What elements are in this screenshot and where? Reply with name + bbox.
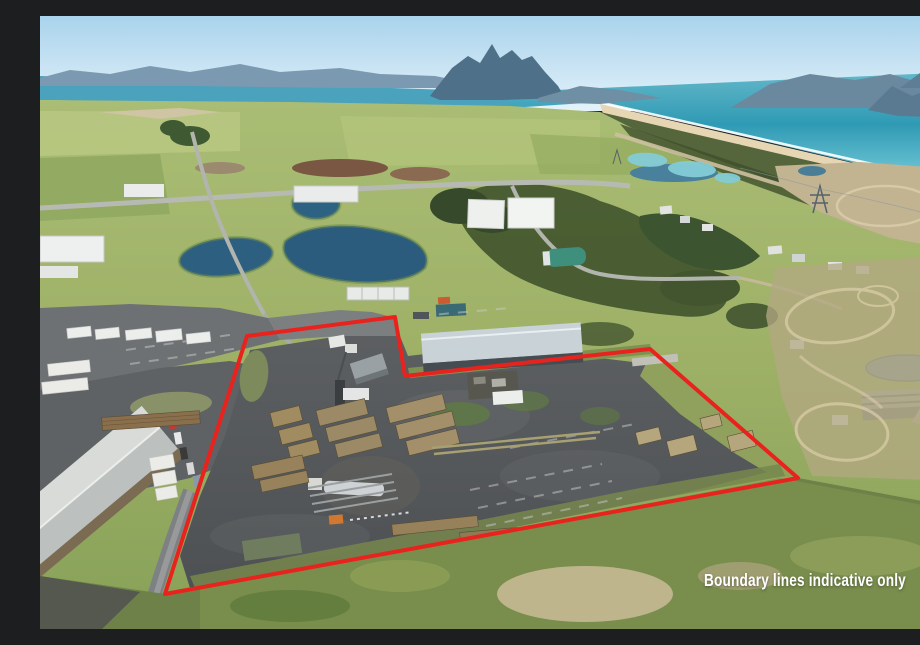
boundary-disclaimer-label: Boundary lines indicative only <box>704 570 906 591</box>
aerial-photo: Boundary lines indicative only <box>40 16 920 629</box>
aerial-photo-scene <box>40 16 920 629</box>
